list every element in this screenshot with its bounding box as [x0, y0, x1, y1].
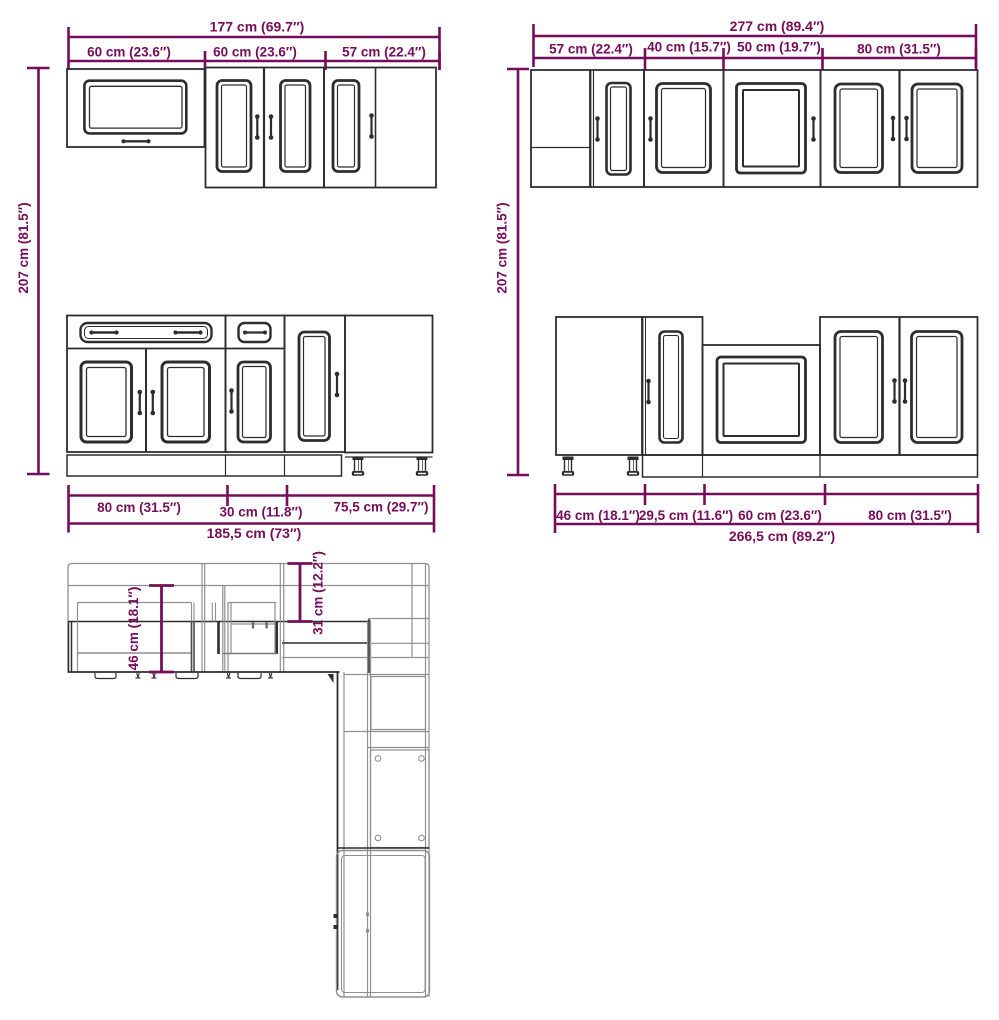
svg-text:57 cm (22.4″): 57 cm (22.4″) [342, 45, 426, 60]
svg-text:277 cm (89.4″): 277 cm (89.4″) [730, 18, 825, 34]
svg-text:80 cm (31.5″): 80 cm (31.5″) [857, 42, 941, 57]
svg-text:75,5 cm (29.7″): 75,5 cm (29.7″) [333, 500, 428, 515]
svg-text:29,5 cm (11.6″): 29,5 cm (11.6″) [639, 508, 733, 523]
svg-text:60 cm (23.6″): 60 cm (23.6″) [738, 508, 822, 523]
svg-text:46 cm (18.1″): 46 cm (18.1″) [126, 587, 141, 671]
svg-text:185,5 cm (73″): 185,5 cm (73″) [207, 525, 302, 541]
svg-text:80 cm (31.5″): 80 cm (31.5″) [868, 508, 952, 523]
svg-text:31 cm (12.2″): 31 cm (12.2″) [311, 551, 326, 635]
svg-text:40 cm (15.7″): 40 cm (15.7″) [647, 40, 731, 55]
svg-text:46 cm (18.1″): 46 cm (18.1″) [556, 508, 640, 523]
svg-text:57 cm (22.4″): 57 cm (22.4″) [549, 42, 633, 57]
svg-text:30 cm (11.8″): 30 cm (11.8″) [219, 505, 302, 520]
svg-text:50 cm (19.7″): 50 cm (19.7″) [737, 40, 821, 55]
svg-text:266,5 cm (89.2″): 266,5 cm (89.2″) [729, 528, 835, 544]
svg-text:80 cm (31.5″): 80 cm (31.5″) [97, 500, 181, 515]
svg-text:207 cm (81.5″): 207 cm (81.5″) [495, 202, 510, 293]
svg-text:60 cm (23.6″): 60 cm (23.6″) [87, 45, 171, 60]
svg-text:177 cm (69.7″): 177 cm (69.7″) [210, 19, 305, 35]
svg-text:60 cm (23.6″): 60 cm (23.6″) [213, 45, 297, 60]
svg-text:207 cm (81.5″): 207 cm (81.5″) [16, 202, 31, 293]
